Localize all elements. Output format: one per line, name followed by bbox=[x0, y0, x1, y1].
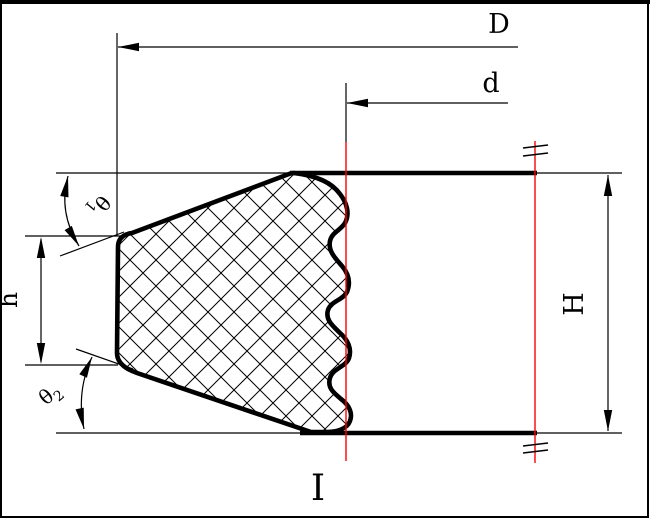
drawing-canvas: D d H h θ1 θ2 I bbox=[0, 0, 650, 519]
dimension-D-label: D bbox=[488, 9, 510, 40]
section-label: I bbox=[311, 468, 325, 509]
dimension-d-label: d bbox=[482, 68, 499, 99]
seal-cross-section-drawing: D d H h θ1 θ2 I bbox=[0, 0, 650, 519]
dimension-H-label: H bbox=[559, 292, 590, 316]
dimension-h-label: h bbox=[0, 292, 23, 308]
